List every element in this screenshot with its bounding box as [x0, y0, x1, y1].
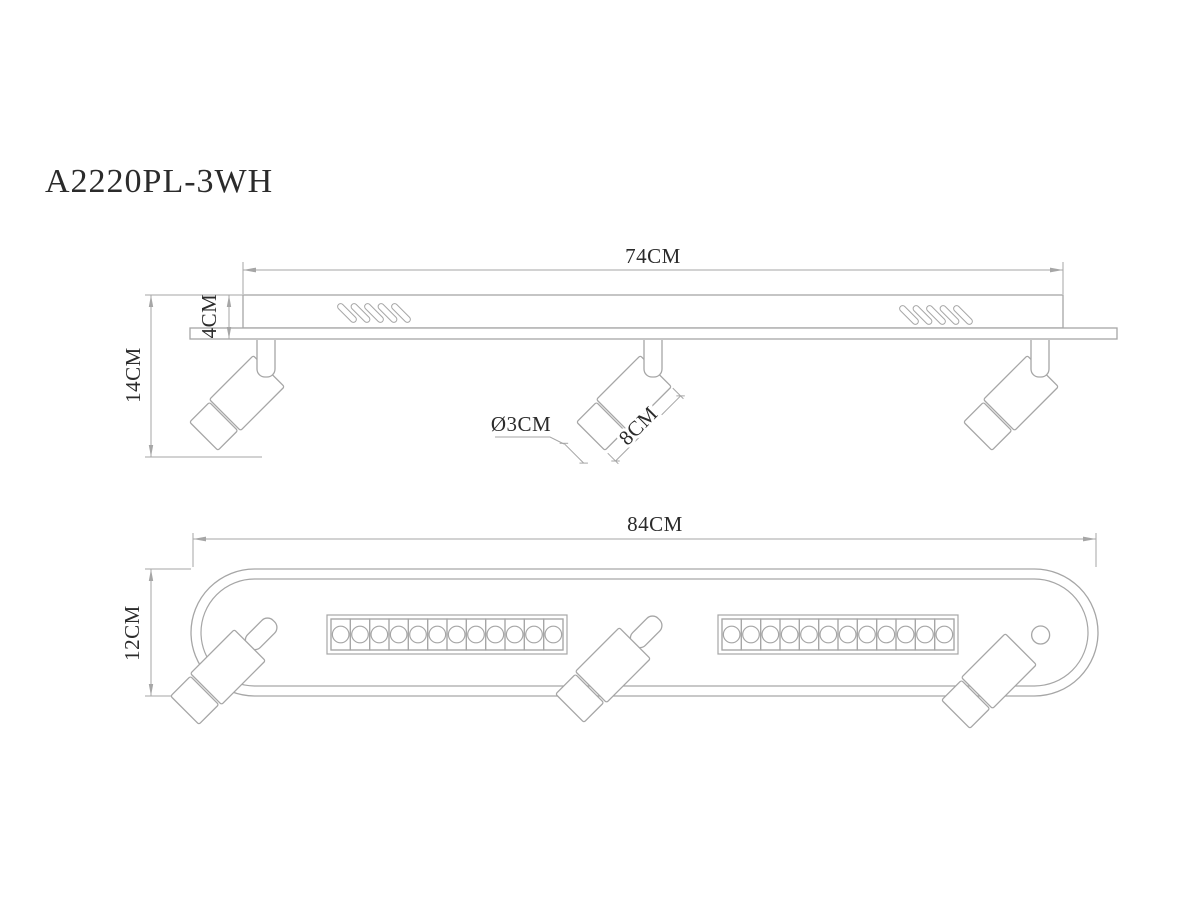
arrow-up-icon [149, 295, 153, 307]
spotlight-stem [644, 340, 662, 377]
dim-label-base-length: 84CM [627, 512, 683, 536]
arrow-left-icon [193, 537, 206, 542]
arrow-down-icon [149, 684, 153, 696]
spotlight-side [962, 340, 1058, 452]
dim-label-fixture-height: 4CM [197, 294, 221, 339]
spotlight-stem [257, 340, 275, 377]
dim-head-diameter: Ø3CM [491, 412, 564, 444]
arrow-up-icon [227, 295, 231, 307]
spotlight-stem [1031, 340, 1049, 377]
arrow-up-icon [149, 569, 153, 581]
dim-label-total-height: 14CM [121, 347, 145, 403]
arrow-right-icon [1083, 537, 1096, 542]
dim-base-width: 12CM [120, 569, 191, 696]
dim-base-length: 84CM [193, 512, 1096, 567]
technical-drawing-page: A2220PL-3WH 74CM 4CM [0, 0, 1200, 900]
fixture-drawing: A2220PL-3WH 74CM 4CM [0, 0, 1200, 900]
arrow-left-icon [243, 268, 256, 273]
spotlight-side [188, 340, 284, 452]
dim-bar-length: 74CM [243, 244, 1063, 294]
bottom-view: 84CM 12CM [120, 512, 1098, 730]
side-view: 74CM 4CM 14CM 8CM [121, 244, 1117, 483]
product-code-title: A2220PL-3WH [45, 163, 273, 200]
ceiling-plate [190, 328, 1117, 339]
dim-label-base-width: 12CM [120, 605, 144, 661]
arrow-right-icon [1050, 268, 1063, 273]
arrow-down-icon [149, 445, 153, 457]
dim-label-bar-length: 74CM [625, 244, 681, 268]
dim-label-head-diameter: Ø3CM [491, 412, 551, 436]
